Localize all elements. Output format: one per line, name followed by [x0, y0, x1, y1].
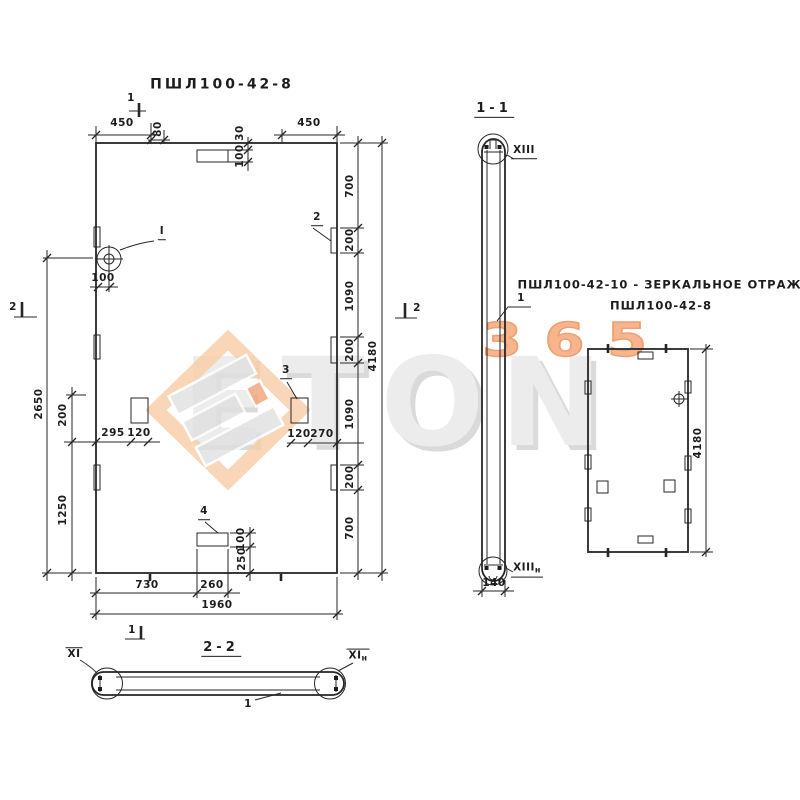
dim-120-left: 120 — [127, 428, 150, 440]
drawing-sheet: ETON 365 — [0, 0, 800, 800]
dim-450-right: 450 — [297, 118, 320, 130]
dim-2650: 2650 — [34, 388, 46, 419]
dim-120-right: 120 — [287, 429, 310, 441]
dim-1090-r2: 1090 — [345, 398, 357, 429]
dim-200-r2: 200 — [345, 338, 357, 361]
dim-200-r3: 200 — [345, 465, 357, 488]
dim-450-left: 450 — [110, 118, 133, 130]
cut-mark-1-top: 1 — [127, 93, 135, 105]
dim-200-r1: 200 — [345, 228, 357, 251]
section-2-2-title: 2-2 — [201, 641, 241, 657]
section-1-1-item-1: 1 — [517, 293, 525, 305]
mirror-title-line1: ПШЛ100-42-10 - ЗЕРКАЛЬНОЕ ОТРАЖЕНИЕ — [517, 279, 800, 292]
cut-mark-2-left: 2 — [9, 302, 17, 314]
dim-700-bottom: 700 — [345, 516, 357, 539]
labels-layer: ПШЛ100-42-8 1 1 2 2 I 2 3 4 450 80 450 3… — [0, 0, 800, 800]
cut-mark-2-right: 2 — [413, 303, 421, 315]
weld-label-xi-right: XIн — [346, 649, 369, 664]
dim-730: 730 — [135, 580, 158, 592]
weld-label-xiii-bottom: XIIIн — [511, 563, 543, 578]
dim-295: 295 — [101, 428, 124, 440]
dim-4180-main: 4180 — [368, 340, 380, 371]
item-label-3: 3 — [280, 365, 292, 379]
dim-1250: 1250 — [58, 494, 70, 525]
weld-label-xi-left: XI — [65, 647, 82, 661]
dim-140: 140 — [482, 578, 505, 590]
item-label-loop: I — [158, 226, 166, 240]
dim-270: 270 — [310, 429, 333, 441]
dim-100-loop: 100 — [91, 273, 114, 285]
item-label-2: 2 — [311, 212, 323, 226]
dim-1960: 1960 — [201, 600, 232, 612]
dim-80: 80 — [153, 121, 165, 137]
dim-200-left: 200 — [58, 403, 70, 426]
section-2-2-item-1: 1 — [244, 699, 252, 711]
dim-1090-r1: 1090 — [345, 280, 357, 311]
dim-250: 250 — [237, 547, 249, 570]
main-title: ПШЛ100-42-8 — [150, 77, 294, 92]
weld-label-xiii-top: XIII — [511, 145, 537, 159]
dim-260: 260 — [200, 580, 223, 592]
dim-700-top: 700 — [345, 174, 357, 197]
item-label-4: 4 — [198, 506, 210, 520]
dim-4180-mirror: 4180 — [693, 427, 705, 458]
dim-100-top: 100 — [235, 144, 247, 167]
dim-30: 30 — [235, 125, 247, 141]
cut-mark-1-bottom: 1 — [128, 625, 136, 637]
section-1-1-title: 1-1 — [474, 102, 514, 118]
mirror-title-line2: ПШЛ100-42-8 — [610, 300, 712, 313]
